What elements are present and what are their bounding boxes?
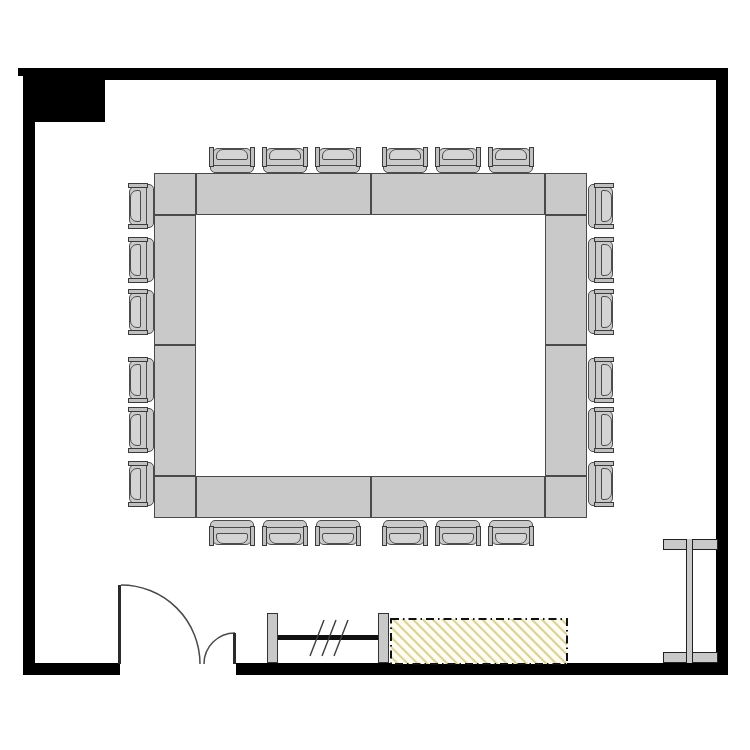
chair	[588, 237, 614, 283]
chair-seat	[588, 290, 596, 334]
chair-armrest	[594, 330, 614, 335]
chair-armrest	[435, 147, 440, 167]
hatched-counter	[391, 619, 567, 664]
chair-back	[269, 533, 301, 544]
chair-armrest	[476, 147, 481, 167]
chair-seat	[263, 165, 307, 173]
chair-armrest	[128, 398, 148, 403]
chair-armrest	[594, 357, 614, 362]
wall-bottom-left	[23, 663, 120, 675]
chair-armrest	[128, 502, 148, 507]
chair-armrest	[594, 224, 614, 229]
chair-armrest	[128, 407, 148, 412]
chair	[435, 147, 481, 173]
chair-armrest	[209, 526, 214, 546]
chair-armrest	[423, 526, 428, 546]
chair	[588, 407, 614, 453]
chair	[128, 357, 154, 403]
chair	[588, 183, 614, 229]
door-leaf	[233, 633, 236, 664]
conference-table-segment	[154, 173, 196, 215]
conference-table-segment	[545, 215, 587, 345]
wall-pilaster-top-left	[23, 68, 105, 122]
chair-armrest	[594, 237, 614, 242]
chair	[262, 147, 308, 173]
floor-plan	[0, 0, 750, 750]
chair	[488, 520, 534, 546]
wall-right	[716, 68, 728, 675]
chair-armrest	[594, 502, 614, 507]
chair-back	[322, 149, 354, 160]
conference-table-segment	[196, 476, 371, 518]
chair-armrest	[303, 526, 308, 546]
chair-back	[495, 149, 527, 160]
coat-rail-post	[267, 613, 278, 663]
chair-armrest	[303, 147, 308, 167]
chair-armrest	[488, 526, 493, 546]
chair-armrest	[250, 526, 255, 546]
chair	[209, 520, 255, 546]
chair-armrest	[476, 526, 481, 546]
chair	[488, 147, 534, 173]
chair-back	[601, 190, 612, 222]
conference-table-segment	[196, 173, 371, 215]
chair-armrest	[128, 237, 148, 242]
chair	[435, 520, 481, 546]
chair-armrest	[594, 448, 614, 453]
conference-table-segment	[154, 215, 196, 345]
chair-seat	[210, 165, 254, 173]
wall-corner-nub	[18, 68, 23, 76]
chair-seat	[316, 165, 360, 173]
chair-armrest	[594, 407, 614, 412]
chair-armrest	[529, 526, 534, 546]
chair-armrest	[435, 526, 440, 546]
chair-armrest	[356, 526, 361, 546]
chair-armrest	[594, 183, 614, 188]
steel-column-web	[686, 539, 693, 663]
chair	[128, 183, 154, 229]
chair-seat	[263, 520, 307, 528]
chair-seat	[436, 165, 480, 173]
chair-armrest	[128, 278, 148, 283]
chair-back	[442, 533, 474, 544]
chair-back	[130, 468, 141, 500]
chair-armrest	[594, 289, 614, 294]
chair-seat	[383, 520, 427, 528]
chair-armrest	[128, 330, 148, 335]
chair-armrest	[250, 147, 255, 167]
chair	[382, 520, 428, 546]
chair-seat	[436, 520, 480, 528]
chair-back	[601, 364, 612, 396]
chair-seat	[146, 358, 154, 402]
chair	[315, 520, 361, 546]
chair-armrest	[423, 147, 428, 167]
chair-back	[130, 296, 141, 328]
chair-seat	[489, 520, 533, 528]
chair-back	[130, 244, 141, 276]
chair-armrest	[315, 526, 320, 546]
conference-table-segment	[545, 476, 587, 518]
chair-seat	[588, 358, 596, 402]
chair-seat	[588, 184, 596, 228]
wall-left	[23, 68, 35, 675]
door-leaf	[118, 585, 121, 664]
chair-back	[130, 190, 141, 222]
conference-table-segment	[371, 173, 545, 215]
chair-seat	[146, 408, 154, 452]
chair-back	[495, 533, 527, 544]
chair-back	[389, 149, 421, 160]
chair-seat	[146, 184, 154, 228]
chair-armrest	[594, 461, 614, 466]
chair-seat	[588, 408, 596, 452]
chair-armrest	[128, 183, 148, 188]
door-swing-arc	[121, 585, 200, 664]
chair-back	[269, 149, 301, 160]
chair-armrest	[262, 147, 267, 167]
chair-armrest	[594, 398, 614, 403]
chair-armrest	[356, 147, 361, 167]
chair-seat	[146, 290, 154, 334]
conference-table-segment	[154, 345, 196, 476]
chair-seat	[316, 520, 360, 528]
chair-back	[601, 244, 612, 276]
chair-back	[130, 364, 141, 396]
chair-armrest	[128, 448, 148, 453]
conference-table-segment	[545, 173, 587, 215]
chair-seat	[146, 238, 154, 282]
conference-table-segment	[154, 476, 196, 518]
chair-armrest	[315, 147, 320, 167]
chair-back	[601, 296, 612, 328]
chair	[128, 237, 154, 283]
conference-table-segment	[545, 345, 587, 476]
chair-back	[389, 533, 421, 544]
chair-seat	[210, 520, 254, 528]
chair-armrest	[382, 526, 387, 546]
chair-armrest	[128, 357, 148, 362]
chair-armrest	[382, 147, 387, 167]
chair	[588, 461, 614, 507]
chair-armrest	[128, 224, 148, 229]
chair-back	[601, 414, 612, 446]
chair	[128, 289, 154, 335]
chair-seat	[146, 462, 154, 506]
chair	[315, 147, 361, 173]
chair-back	[322, 533, 354, 544]
chair	[588, 289, 614, 335]
chair-armrest	[209, 147, 214, 167]
chair-armrest	[488, 147, 493, 167]
wall-bottom-right	[236, 663, 728, 675]
conference-table-segment	[371, 476, 545, 518]
chair-armrest	[529, 147, 534, 167]
door-swing-arc	[204, 633, 235, 664]
coat-rail-bar	[278, 635, 378, 640]
chair-armrest	[262, 526, 267, 546]
chair-seat	[383, 165, 427, 173]
chair-seat	[588, 462, 596, 506]
chair	[262, 520, 308, 546]
chair	[588, 357, 614, 403]
wall-top	[23, 68, 728, 80]
coat-rail-post	[378, 613, 389, 663]
chair	[128, 461, 154, 507]
chair-seat	[489, 165, 533, 173]
chair	[209, 147, 255, 173]
chair-seat	[588, 238, 596, 282]
chair	[382, 147, 428, 173]
chair-back	[216, 533, 248, 544]
chair-armrest	[128, 461, 148, 466]
chair	[128, 407, 154, 453]
chair-back	[442, 149, 474, 160]
chair-back	[130, 414, 141, 446]
chair-back	[601, 468, 612, 500]
chair-armrest	[594, 278, 614, 283]
chair-armrest	[128, 289, 148, 294]
chair-back	[216, 149, 248, 160]
